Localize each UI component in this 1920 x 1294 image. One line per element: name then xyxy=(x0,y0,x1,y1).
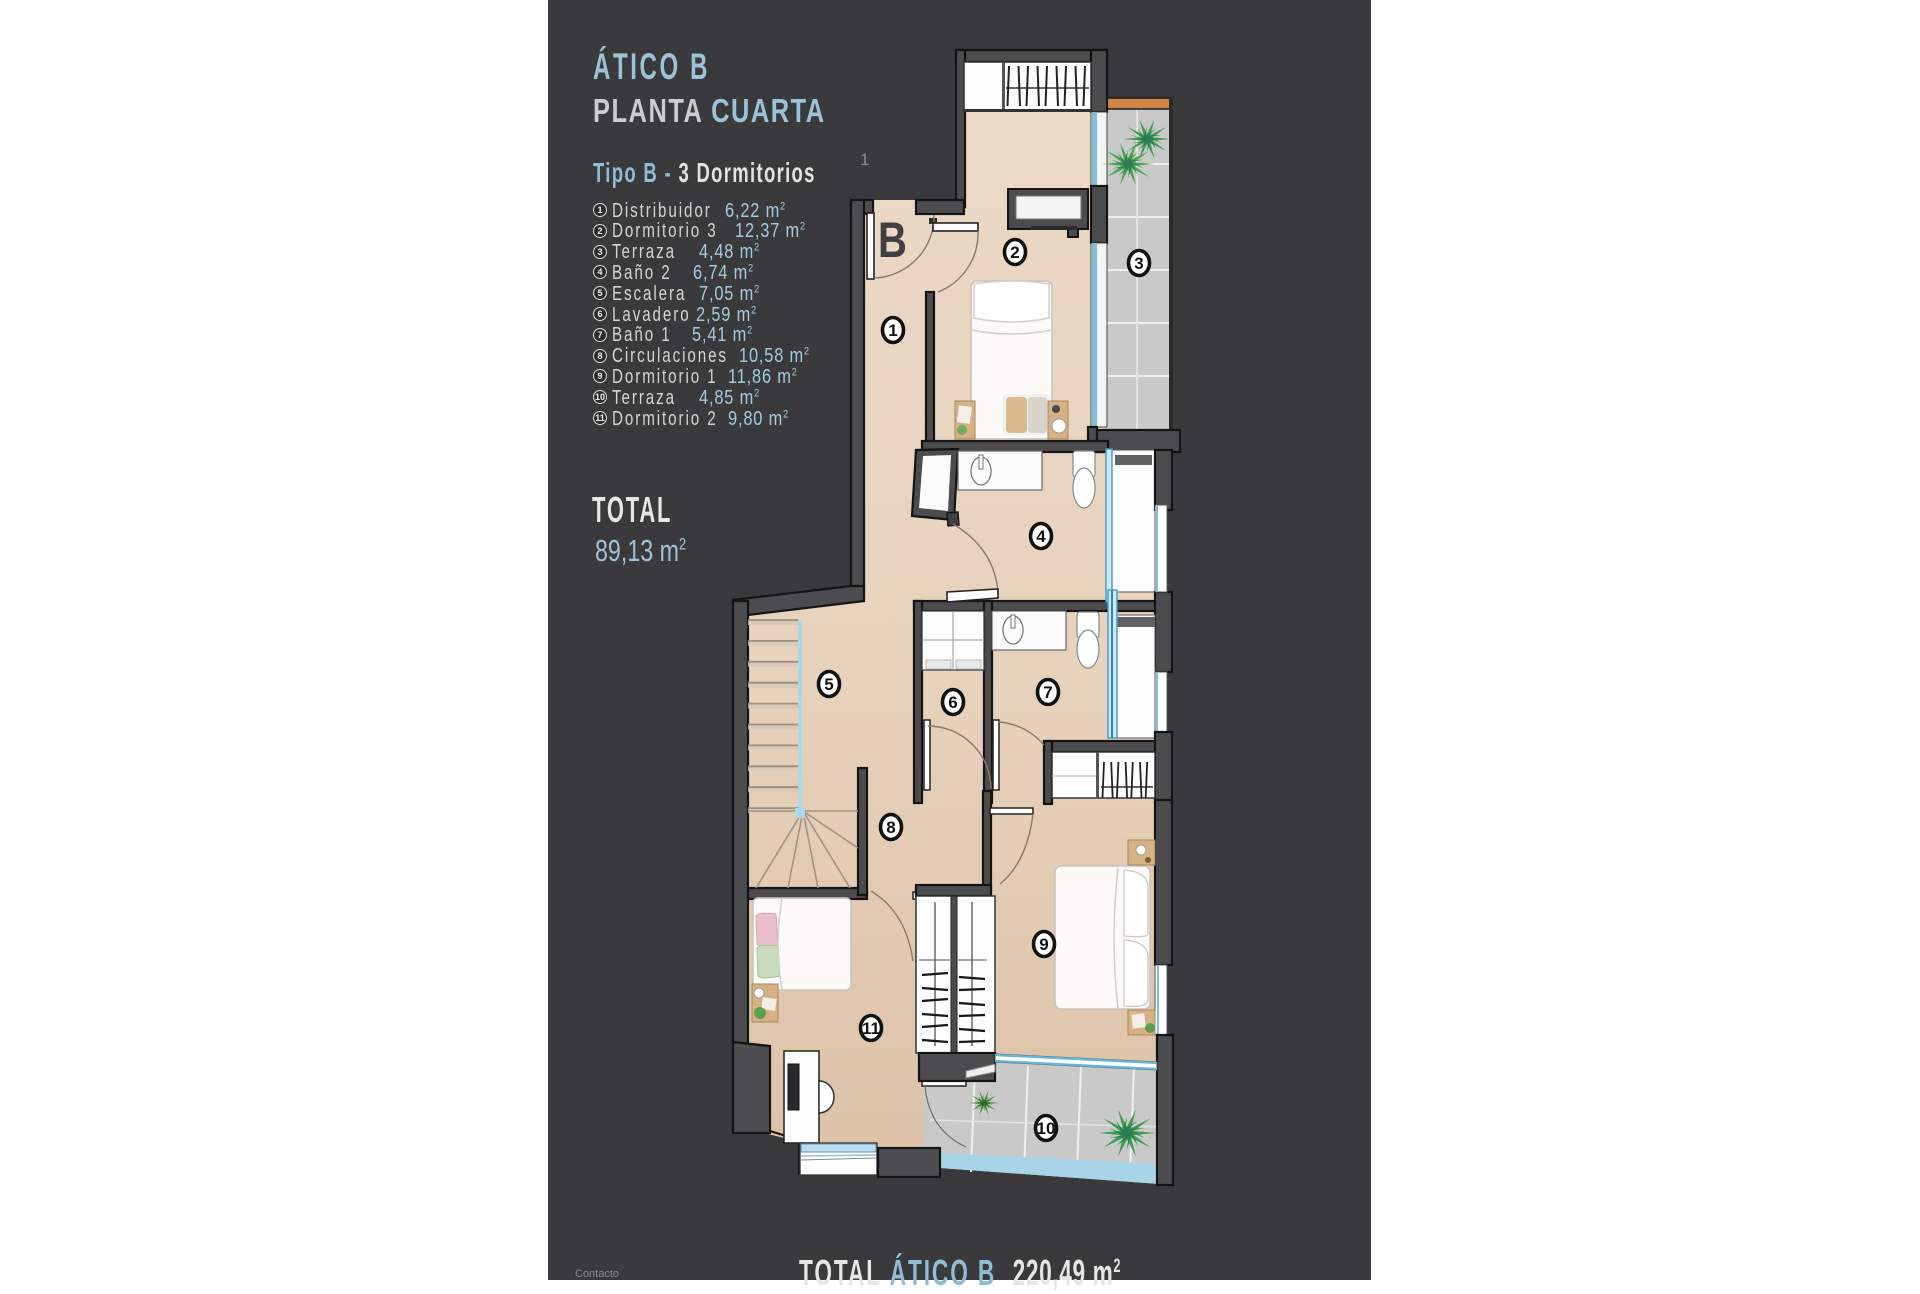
svg-text:2: 2 xyxy=(1010,243,1019,262)
svg-text:6: 6 xyxy=(948,693,957,712)
svg-text:3: 3 xyxy=(1134,254,1143,273)
svg-text:11: 11 xyxy=(862,1019,880,1038)
svg-text:9: 9 xyxy=(1039,935,1048,954)
svg-text:8: 8 xyxy=(886,818,895,837)
svg-text:1: 1 xyxy=(888,321,897,340)
svg-text:10: 10 xyxy=(1037,1119,1056,1138)
svg-text:7: 7 xyxy=(1043,683,1052,702)
svg-text:B: B xyxy=(878,212,907,268)
svg-text:5: 5 xyxy=(824,675,833,694)
svg-text:4: 4 xyxy=(1036,527,1046,546)
